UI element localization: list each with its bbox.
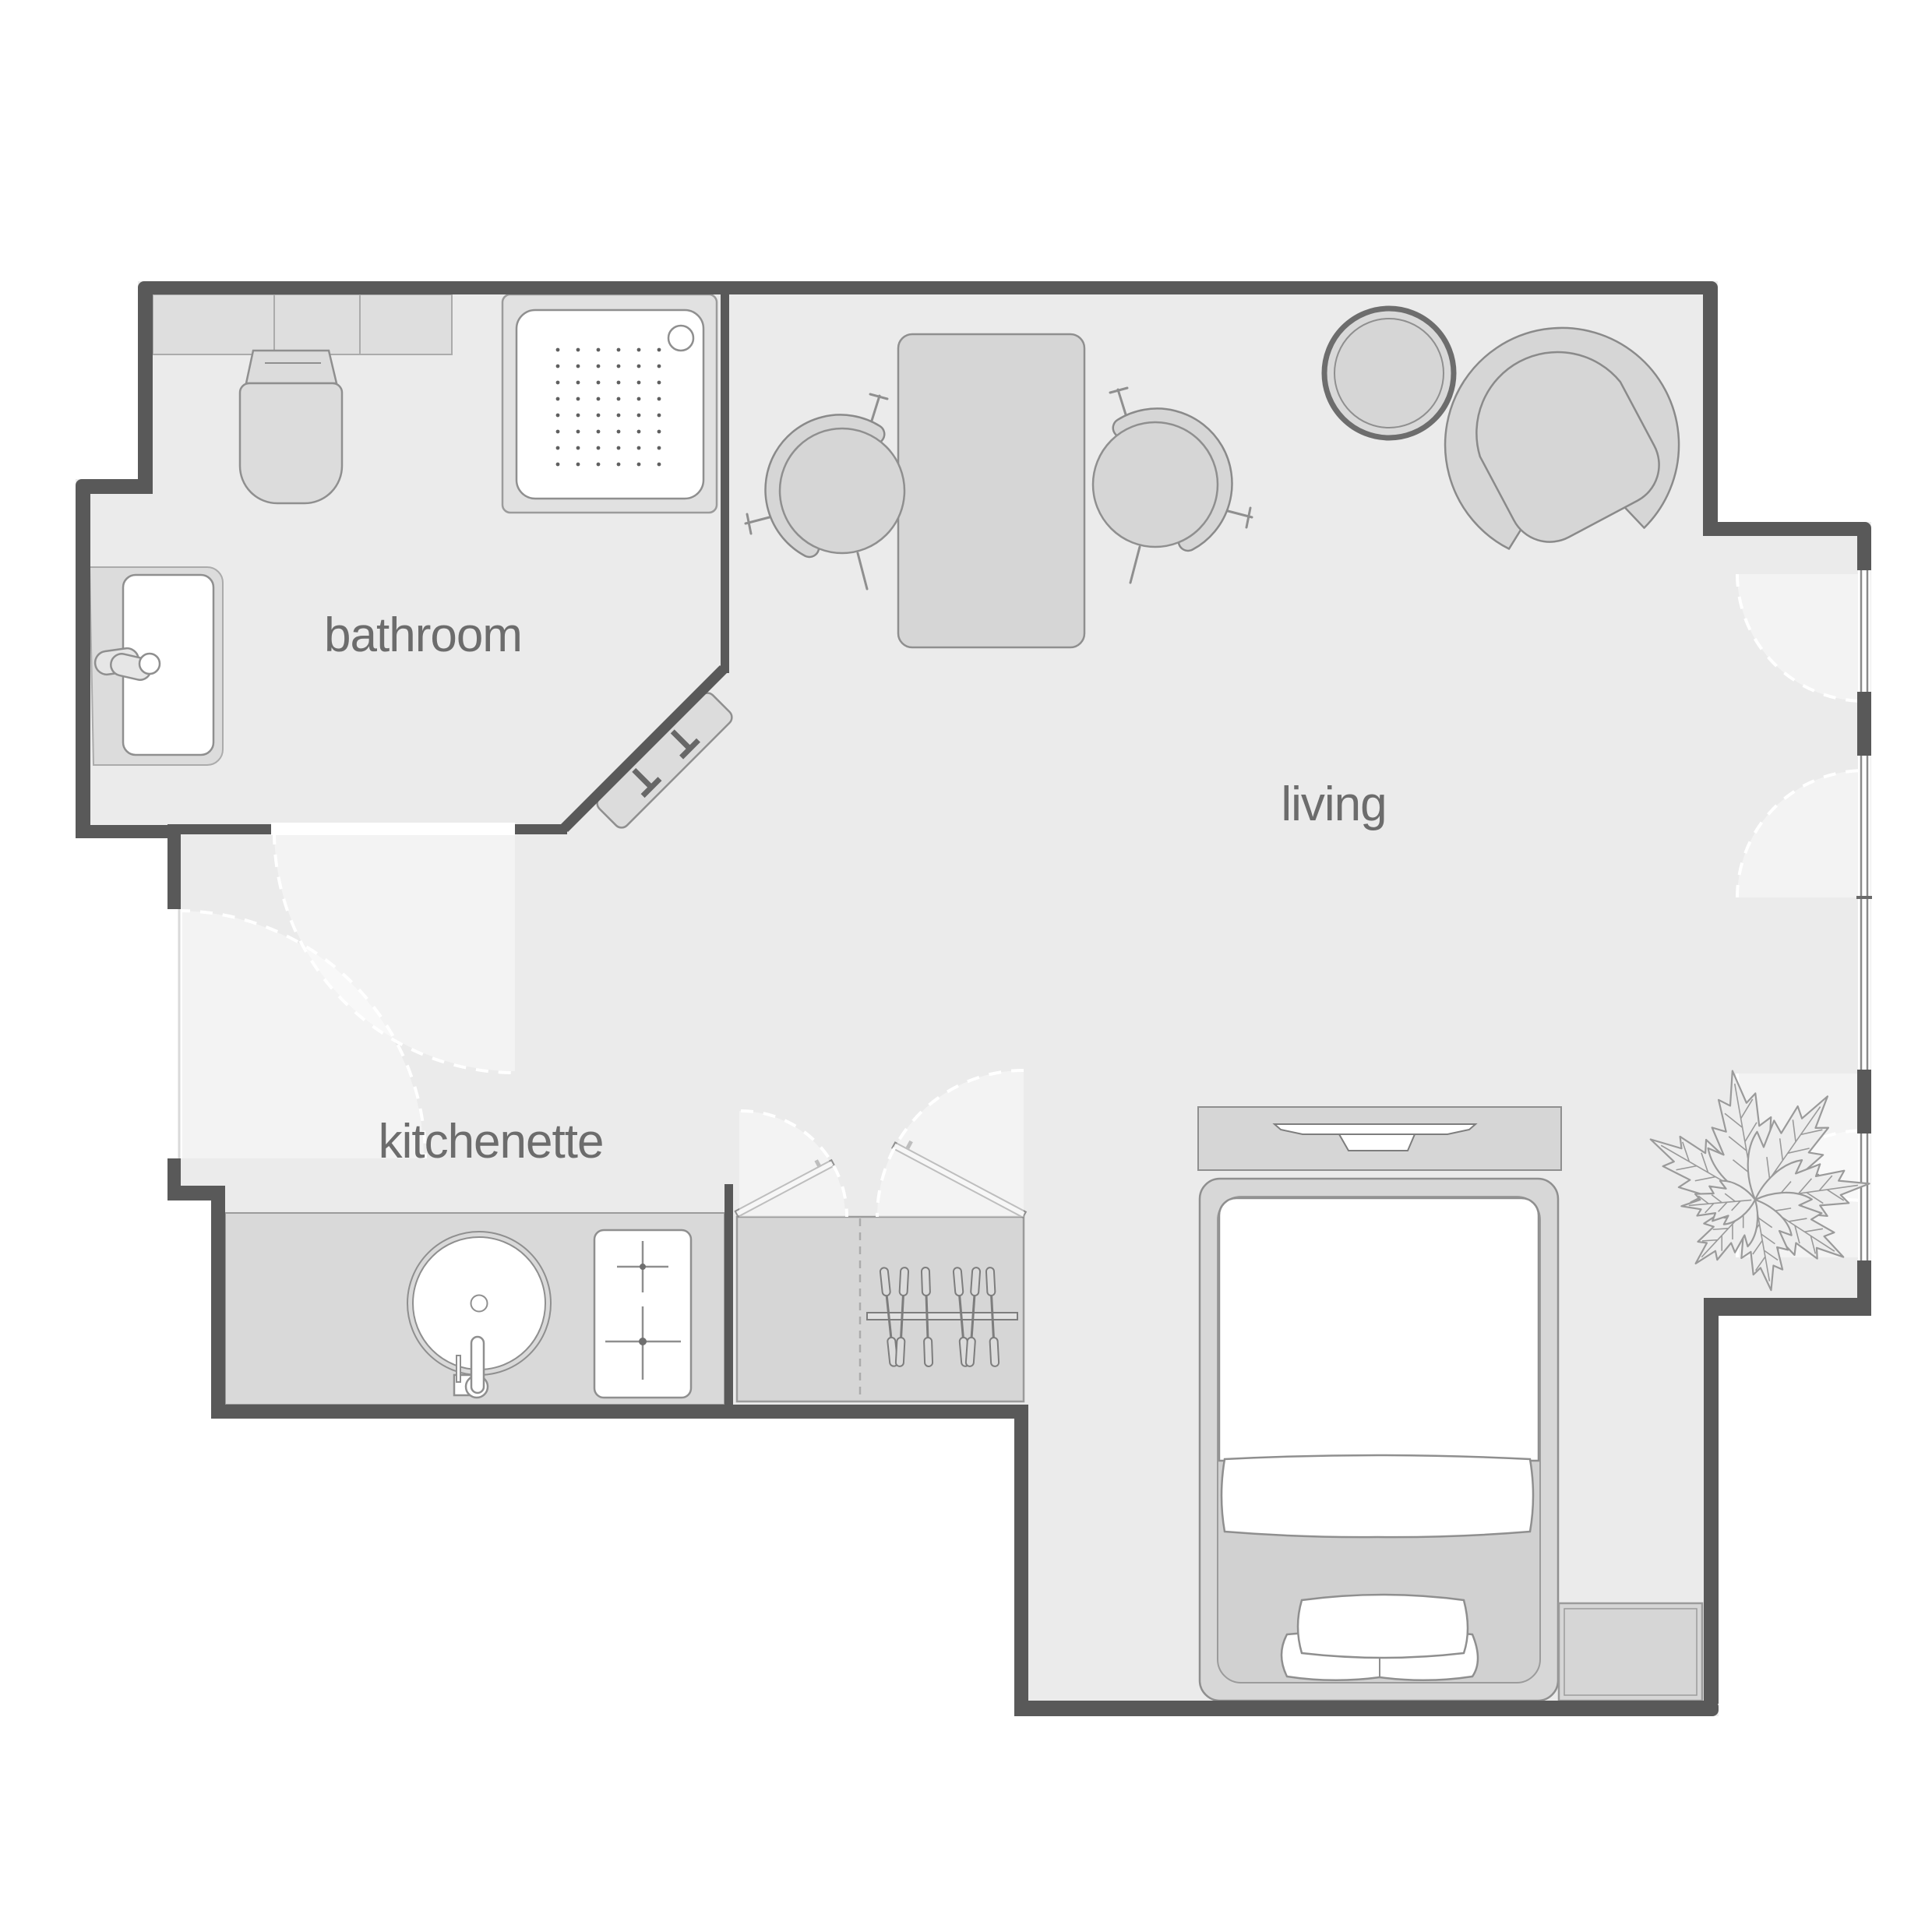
svg-text:kitchenette: kitchenette: [379, 1115, 604, 1169]
svg-text:bathroom: bathroom: [324, 608, 522, 662]
svg-text:living: living: [1281, 777, 1386, 831]
